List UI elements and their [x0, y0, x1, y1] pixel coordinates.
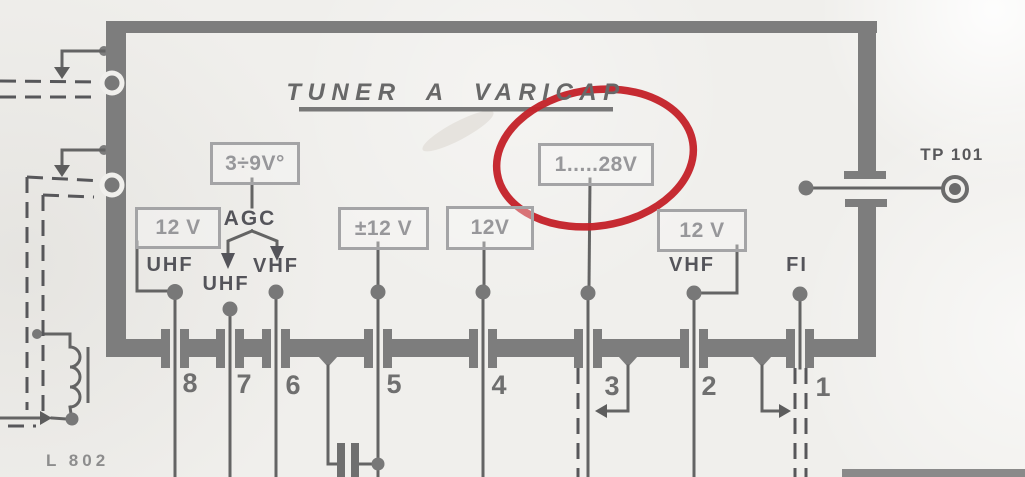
test-point-terminal [943, 177, 967, 201]
pin-number-8: 8 [182, 368, 197, 399]
decoupling-capacitor [337, 443, 359, 477]
test-point-label: TP 101 [920, 145, 984, 165]
voltage-box-uhf-12v: 12 V [135, 207, 221, 249]
paper-smudge [418, 104, 497, 157]
pin-number-6: 6 [285, 370, 300, 401]
voltage-box-plusminus-12v: ±12 V [338, 207, 429, 250]
pin-number-3: 3 [604, 371, 619, 402]
vhf-label-pin6: VHF [253, 255, 299, 278]
voltage-box-pin4-12v: 12V [446, 206, 534, 250]
diagram-title: TUNER A VARICAP [286, 79, 625, 107]
fi-label-pin1: FI [786, 254, 808, 277]
adjacent-block-edge [842, 469, 1025, 477]
pin-number-5: 5 [386, 369, 401, 400]
voltage-box-agc-range: 3÷9V° [210, 142, 300, 185]
pin-number-4: 4 [491, 370, 506, 401]
voltage-box-tuning-1-28v: 1.....28V [538, 143, 654, 186]
uhf-label-pin8: UHF [146, 254, 193, 277]
tuner-block-outline [99, 21, 887, 368]
pin-number-7: 7 [236, 369, 251, 400]
uhf-label-pin7: UHF [202, 273, 249, 296]
pin-number-1: 1 [815, 372, 830, 403]
title-underline [299, 107, 613, 112]
inductor-label: L 802 [46, 451, 109, 471]
voltage-box-vhf-12v: 12 V [657, 209, 747, 252]
vhf-label-pin2: VHF [669, 254, 715, 277]
schematic-scan: TUNER A VARICAP 3÷9V° 12 V ±12 V 12V 1..… [0, 0, 1025, 477]
agc-label: AGC [224, 207, 277, 231]
inductor-coil [70, 347, 88, 407]
pin-number-2: 2 [701, 371, 716, 402]
